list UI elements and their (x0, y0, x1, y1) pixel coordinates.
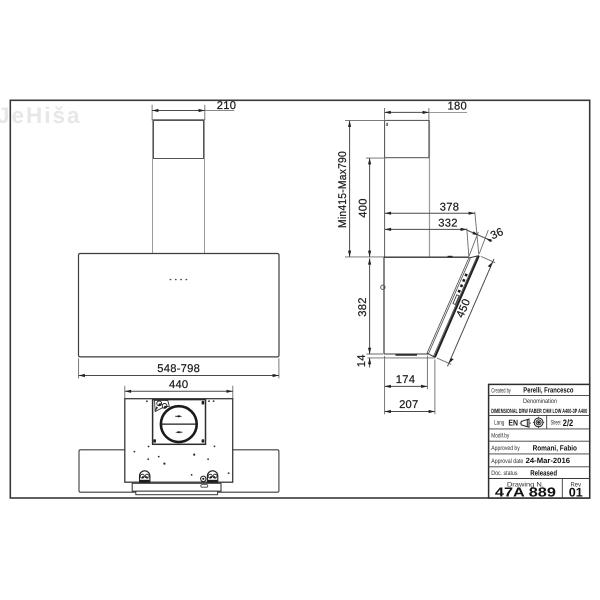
svg-text:EN: EN (508, 417, 518, 427)
svg-text:440: 440 (169, 379, 188, 391)
svg-text:JeHiša: JeHiša (0, 103, 82, 128)
svg-text:2/2: 2/2 (563, 417, 573, 428)
svg-text:Approved by: Approved by (491, 445, 520, 452)
svg-text:332: 332 (438, 218, 457, 230)
svg-text:Perelli, Francesco: Perelli, Francesco (523, 386, 573, 395)
svg-text:14: 14 (356, 354, 368, 367)
svg-text:Released: Released (530, 468, 557, 477)
svg-text:Romani, Fabio: Romani, Fabio (533, 443, 578, 452)
svg-text:548-798: 548-798 (157, 363, 200, 375)
svg-text:24-Mar-2016: 24-Mar-2016 (526, 456, 570, 465)
svg-text:378: 378 (440, 201, 459, 213)
svg-text:180: 180 (448, 100, 467, 112)
svg-text:207: 207 (399, 399, 418, 411)
svg-text:47A 889: 47A 889 (495, 485, 556, 500)
svg-text:382: 382 (357, 297, 369, 316)
svg-text:Lang: Lang (494, 420, 505, 427)
svg-text:Sheet: Sheet (551, 420, 561, 427)
svg-text:Created by: Created by (491, 387, 511, 394)
svg-text:Doc. status: Doc. status (491, 470, 517, 477)
svg-text:Modif.by: Modif.by (491, 432, 510, 439)
svg-text:174: 174 (396, 374, 415, 386)
svg-text:Approval date: Approval date (491, 458, 523, 465)
svg-text:400: 400 (357, 198, 369, 217)
svg-text:210: 210 (217, 100, 236, 112)
svg-text:Denomination: Denomination (523, 398, 557, 405)
svg-text:Min415-Max790: Min415-Max790 (337, 151, 349, 228)
svg-text:01: 01 (569, 486, 583, 500)
svg-text:DIMENSIONAL DRW FABER CHM LOW: DIMENSIONAL DRW FABER CHM LOW A400-3P A4… (491, 408, 587, 415)
